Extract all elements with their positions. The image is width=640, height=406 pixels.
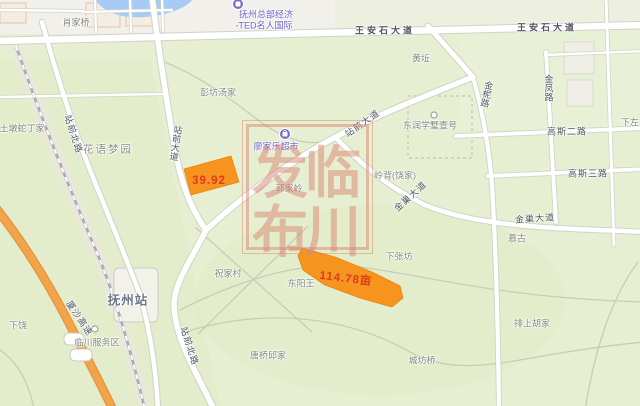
supermarket-poi-icon[interactable]	[280, 129, 291, 140]
parcel-1[interactable]	[184, 156, 239, 195]
service-area-poi-dot[interactable]	[92, 326, 98, 332]
map-graphics	[0, 0, 640, 406]
map[interactable]: 肖家桥抚州总部经济-TED名人国际王安石大道王安石大道黄坵彭坊汤家金柅路金凤路下…	[0, 0, 640, 406]
dongrun-poi-dot[interactable]	[431, 112, 437, 118]
hq-poi-icon[interactable]	[233, 0, 244, 10]
